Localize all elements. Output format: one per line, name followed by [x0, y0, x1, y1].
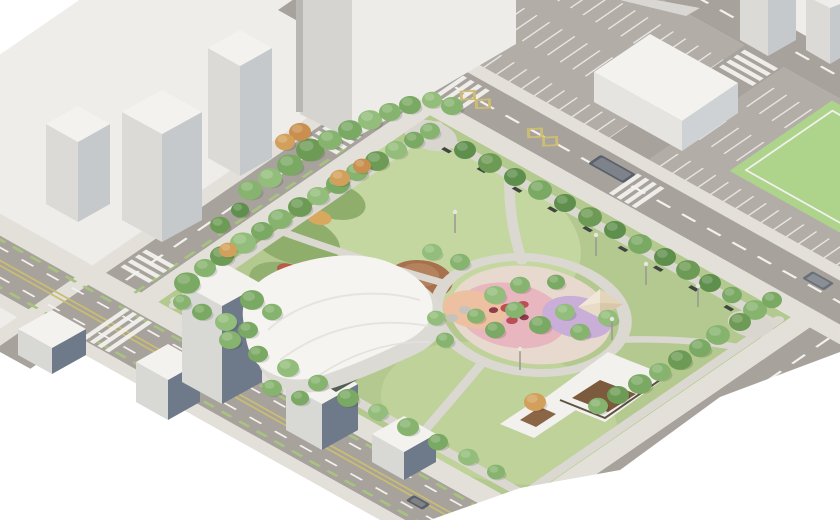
- tree-highlight: [368, 153, 380, 162]
- tree-highlight: [333, 171, 343, 179]
- tree-highlight: [243, 292, 255, 301]
- lamp-head: [453, 210, 457, 214]
- tree-highlight: [340, 391, 351, 399]
- tree-highlight: [679, 262, 691, 271]
- tree-highlight: [382, 105, 393, 113]
- tree-highlight: [507, 170, 518, 178]
- tree-highlight: [425, 93, 435, 101]
- tree-highlight: [265, 381, 275, 389]
- tree-highlight: [607, 223, 618, 231]
- tree-highlight: [702, 276, 713, 284]
- tree-highlight: [557, 196, 568, 204]
- tree-highlight: [429, 312, 438, 319]
- tree-highlight: [251, 347, 261, 355]
- tree-highlight: [292, 125, 303, 133]
- tree-highlight: [300, 140, 314, 151]
- tree-highlight: [221, 244, 230, 251]
- tree-highlight: [457, 143, 468, 151]
- tr-building2-right-face: [830, 4, 840, 64]
- tower3-left-face: [208, 48, 240, 176]
- rendering-stage: [0, 0, 840, 520]
- tree-highlight: [265, 305, 275, 313]
- tree-highlight: [481, 155, 493, 164]
- tree-highlight: [293, 392, 302, 399]
- tree-highlight: [400, 420, 411, 428]
- tree-highlight: [241, 323, 251, 331]
- tree-highlight: [461, 450, 471, 458]
- tree-highlight: [652, 365, 663, 373]
- tree-highlight: [487, 288, 498, 296]
- tree-highlight: [732, 315, 743, 323]
- tree-highlight: [361, 112, 373, 121]
- tree-highlight: [195, 305, 205, 313]
- tree-highlight: [631, 236, 643, 245]
- lamp-head: [696, 284, 700, 288]
- tree-highlight: [371, 405, 381, 413]
- tree-highlight: [311, 376, 321, 384]
- tree-highlight: [310, 189, 321, 197]
- tree-highlight: [402, 98, 413, 106]
- lamp-head: [518, 347, 522, 351]
- tree-highlight: [581, 209, 593, 218]
- tree-highlight: [532, 318, 543, 326]
- boulder: [446, 314, 458, 322]
- tower2-left-face: [122, 112, 162, 242]
- tree-highlight: [631, 376, 643, 385]
- tree-highlight: [271, 211, 283, 220]
- tower3-right-face: [240, 48, 272, 176]
- lamp-head: [644, 262, 648, 266]
- tree-highlight: [671, 352, 683, 361]
- lamp-head: [610, 317, 614, 321]
- tower-northwest-3: [208, 30, 272, 176]
- tree-highlight: [233, 204, 242, 211]
- tree-highlight: [407, 133, 417, 141]
- tree-highlight: [175, 296, 184, 303]
- tree-highlight: [280, 156, 293, 166]
- tree-highlight: [692, 341, 703, 349]
- tree-highlight: [469, 310, 478, 317]
- tree-highlight: [573, 325, 583, 333]
- tree-highlight: [425, 245, 435, 253]
- tree-highlight: [591, 399, 601, 407]
- tree-highlight: [222, 333, 233, 341]
- tree-highlight: [197, 261, 208, 269]
- tree-highlight: [531, 182, 543, 191]
- tree-highlight: [278, 135, 288, 143]
- tree-highlight: [261, 170, 273, 179]
- tree-highlight: [177, 274, 190, 284]
- tree-highlight: [453, 255, 463, 263]
- tree-highlight: [431, 435, 441, 443]
- tree-highlight: [527, 395, 538, 403]
- park-masterplan-rendering: [0, 0, 840, 520]
- tower2-right-face: [162, 112, 202, 242]
- tree-highlight: [218, 315, 229, 323]
- tree-highlight: [388, 143, 399, 151]
- tree-highlight: [444, 99, 455, 107]
- lamp-head: [594, 233, 598, 237]
- tree-highlight: [355, 160, 364, 167]
- tree-highlight: [558, 305, 568, 313]
- tree-highlight: [423, 124, 433, 132]
- tree-highlight: [341, 122, 353, 131]
- tree-highlight: [610, 388, 621, 396]
- tree-highlight: [280, 361, 291, 369]
- tree-highlight: [549, 276, 558, 283]
- tree-highlight: [765, 293, 775, 301]
- tree-highlight: [488, 323, 498, 331]
- tree-highlight: [438, 334, 447, 341]
- tree-highlight: [508, 303, 518, 311]
- tower-northwest-2: [122, 90, 202, 242]
- tree-highlight: [513, 278, 523, 286]
- tree-highlight: [601, 311, 611, 319]
- tree-highlight: [321, 132, 333, 141]
- tree-highlight: [233, 234, 246, 244]
- tree-highlight: [709, 327, 721, 336]
- tree-highlight: [254, 224, 265, 232]
- tree-highlight: [213, 218, 223, 226]
- tree-highlight: [241, 182, 253, 191]
- tree-highlight: [725, 288, 735, 296]
- tree-highlight: [657, 250, 668, 258]
- tree-highlight: [746, 302, 758, 311]
- tree-highlight: [489, 466, 498, 473]
- tree-highlight: [291, 199, 303, 208]
- tower-northwest-1: [46, 106, 110, 222]
- slab-seam: [296, 0, 303, 112]
